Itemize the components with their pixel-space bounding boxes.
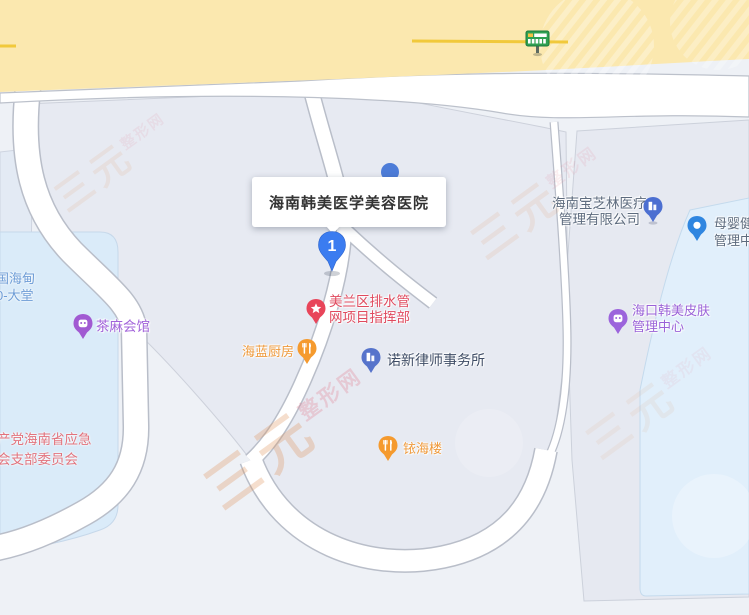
poi-label-line2: 管理中心 — [632, 319, 710, 335]
poi-label-line1: 母婴健 — [714, 215, 749, 232]
hospital-callout-title: 海南韩美医学美容医院 — [269, 192, 429, 213]
star-pin-icon — [305, 298, 327, 328]
bus-stop-icon[interactable] — [525, 29, 551, 57]
poi-label-line1: 海蓝厨房 — [240, 344, 294, 360]
poi-label-line1: 海南宝芝林医疗 — [552, 196, 640, 212]
bus-stop-sign-icon — [525, 29, 551, 57]
poi-label-line1: 茶麻会馆 — [96, 319, 150, 335]
marker-pin-icon: 1 — [315, 230, 349, 278]
map-canvas[interactable]: 三元整形网 三元整形网 三元整形网 三元整形网 — [0, 0, 749, 615]
poi-label-line1: 海口韩美皮肤 — [632, 303, 710, 319]
poi-label-line2: 管理中 — [714, 232, 749, 249]
restaurant-pin-icon — [377, 435, 399, 465]
poi-label-line2: 网项目指挥部 — [329, 310, 410, 326]
poi-label-line2: 管理有限公司 — [552, 212, 640, 228]
poi-haidian-building-label[interactable]: 国海甸 0-大堂 — [0, 270, 35, 304]
poi-label-line1: 诺新律师事务所 — [387, 352, 485, 368]
cut-label-line2: 会支部委员会 — [0, 450, 92, 470]
cut-label-line1: 国海甸 — [0, 270, 35, 287]
office-building-pin-icon — [360, 347, 382, 377]
cut-label-line1: 产党海南省应急 — [0, 430, 92, 450]
company-building-pin-icon — [642, 196, 664, 226]
location-marker-1[interactable]: 1 — [315, 230, 349, 278]
poi-party-committee-label[interactable]: 产党海南省应急 会支部委员会 — [0, 430, 92, 470]
marker-number: 1 — [328, 238, 337, 255]
cut-label-line2: 0-大堂 — [0, 287, 35, 304]
dot-pin-icon — [686, 215, 708, 245]
beauty-pin-icon — [607, 308, 629, 338]
teahouse-pin-icon — [72, 313, 94, 343]
restaurant-pin-icon — [296, 338, 318, 368]
poi-label-line1: 铱海楼 — [403, 441, 442, 457]
poi-label-line1: 美兰区排水管 — [329, 294, 410, 310]
hospital-callout[interactable]: 海南韩美医学美容医院 — [252, 177, 446, 227]
